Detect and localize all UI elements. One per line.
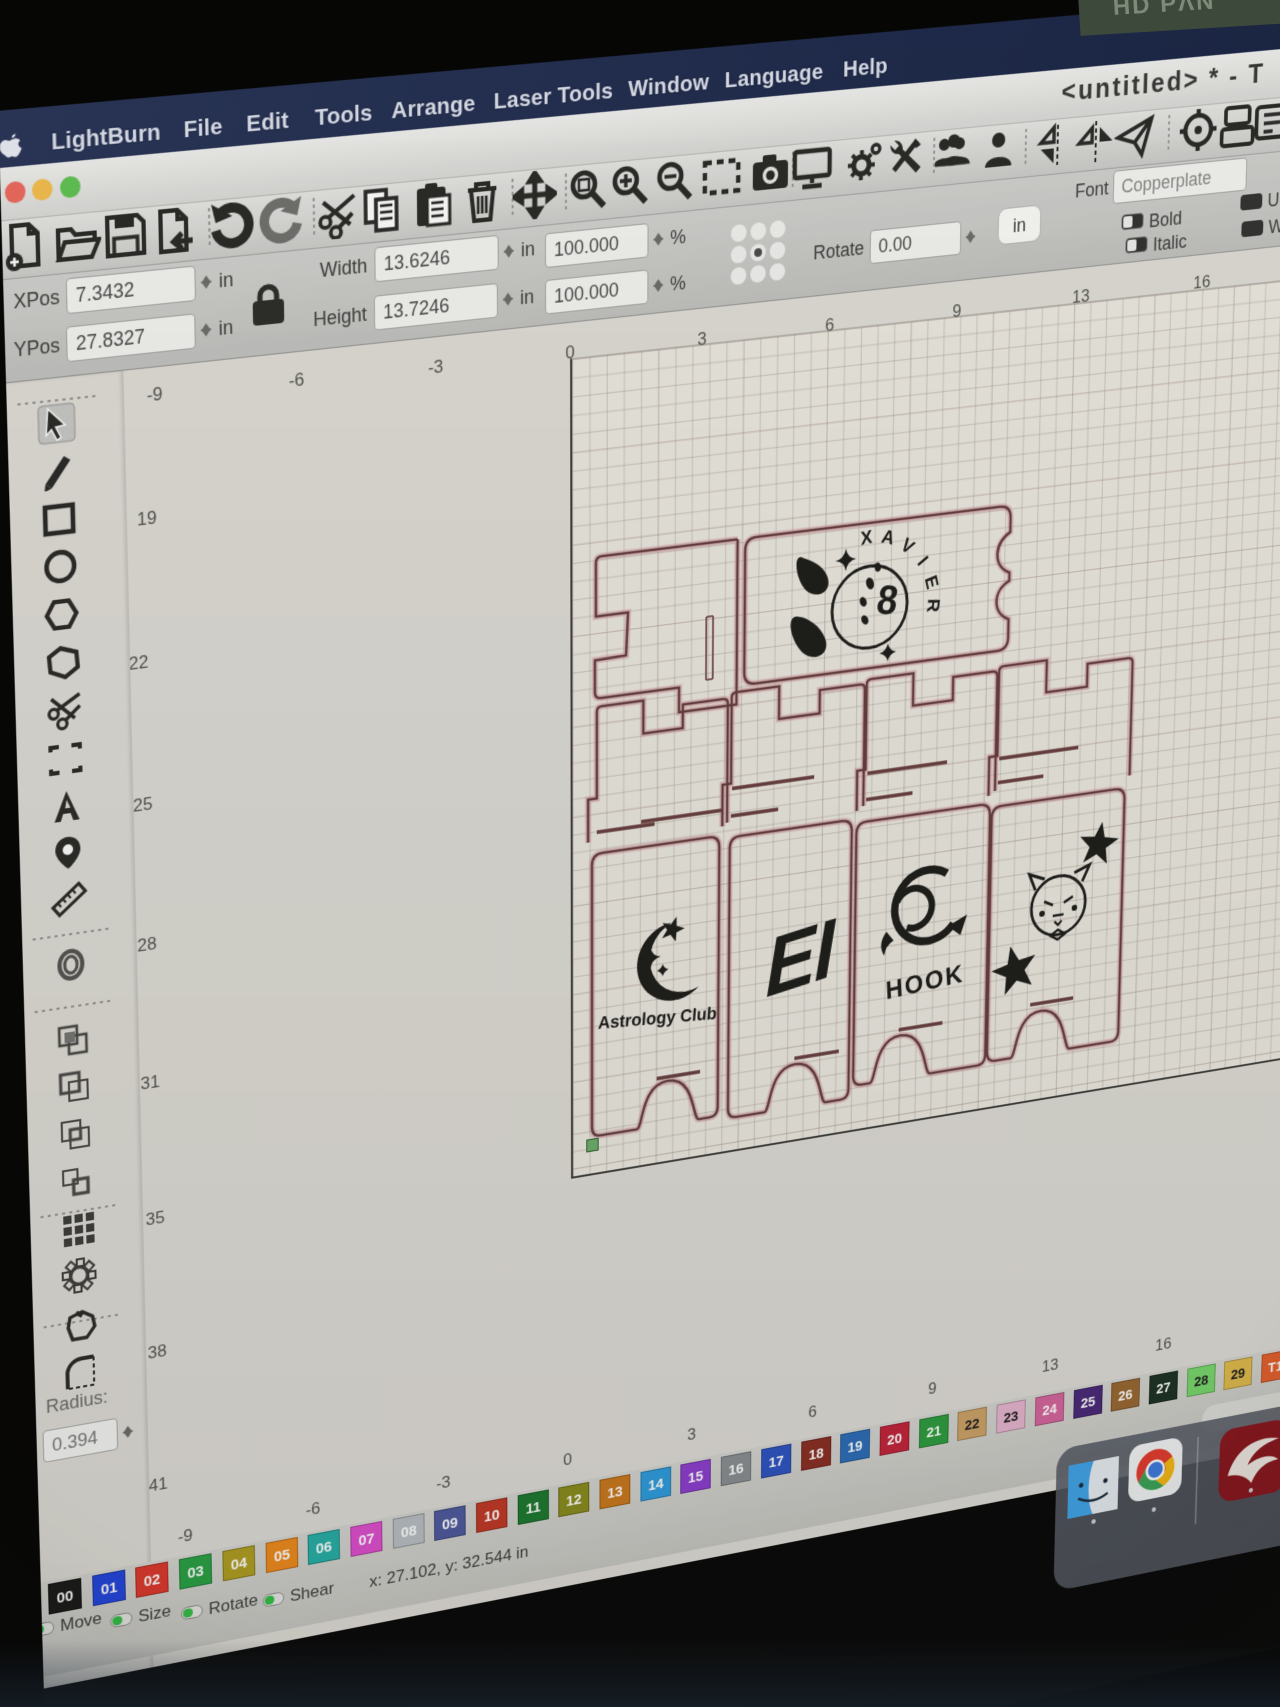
svg-text:A: A: [879, 526, 897, 549]
svg-text:X: X: [860, 526, 873, 549]
svg-text:E: E: [921, 573, 942, 592]
svg-text:8: 8: [874, 576, 901, 623]
svg-text:EI: EI: [765, 900, 837, 1015]
svg-text:Astrology Club: Astrology Club: [597, 1004, 717, 1034]
svg-text:V: V: [897, 534, 918, 559]
svg-text:R: R: [923, 599, 943, 613]
svg-text:HOOK: HOOK: [885, 960, 965, 1006]
svg-text:I: I: [913, 552, 932, 570]
